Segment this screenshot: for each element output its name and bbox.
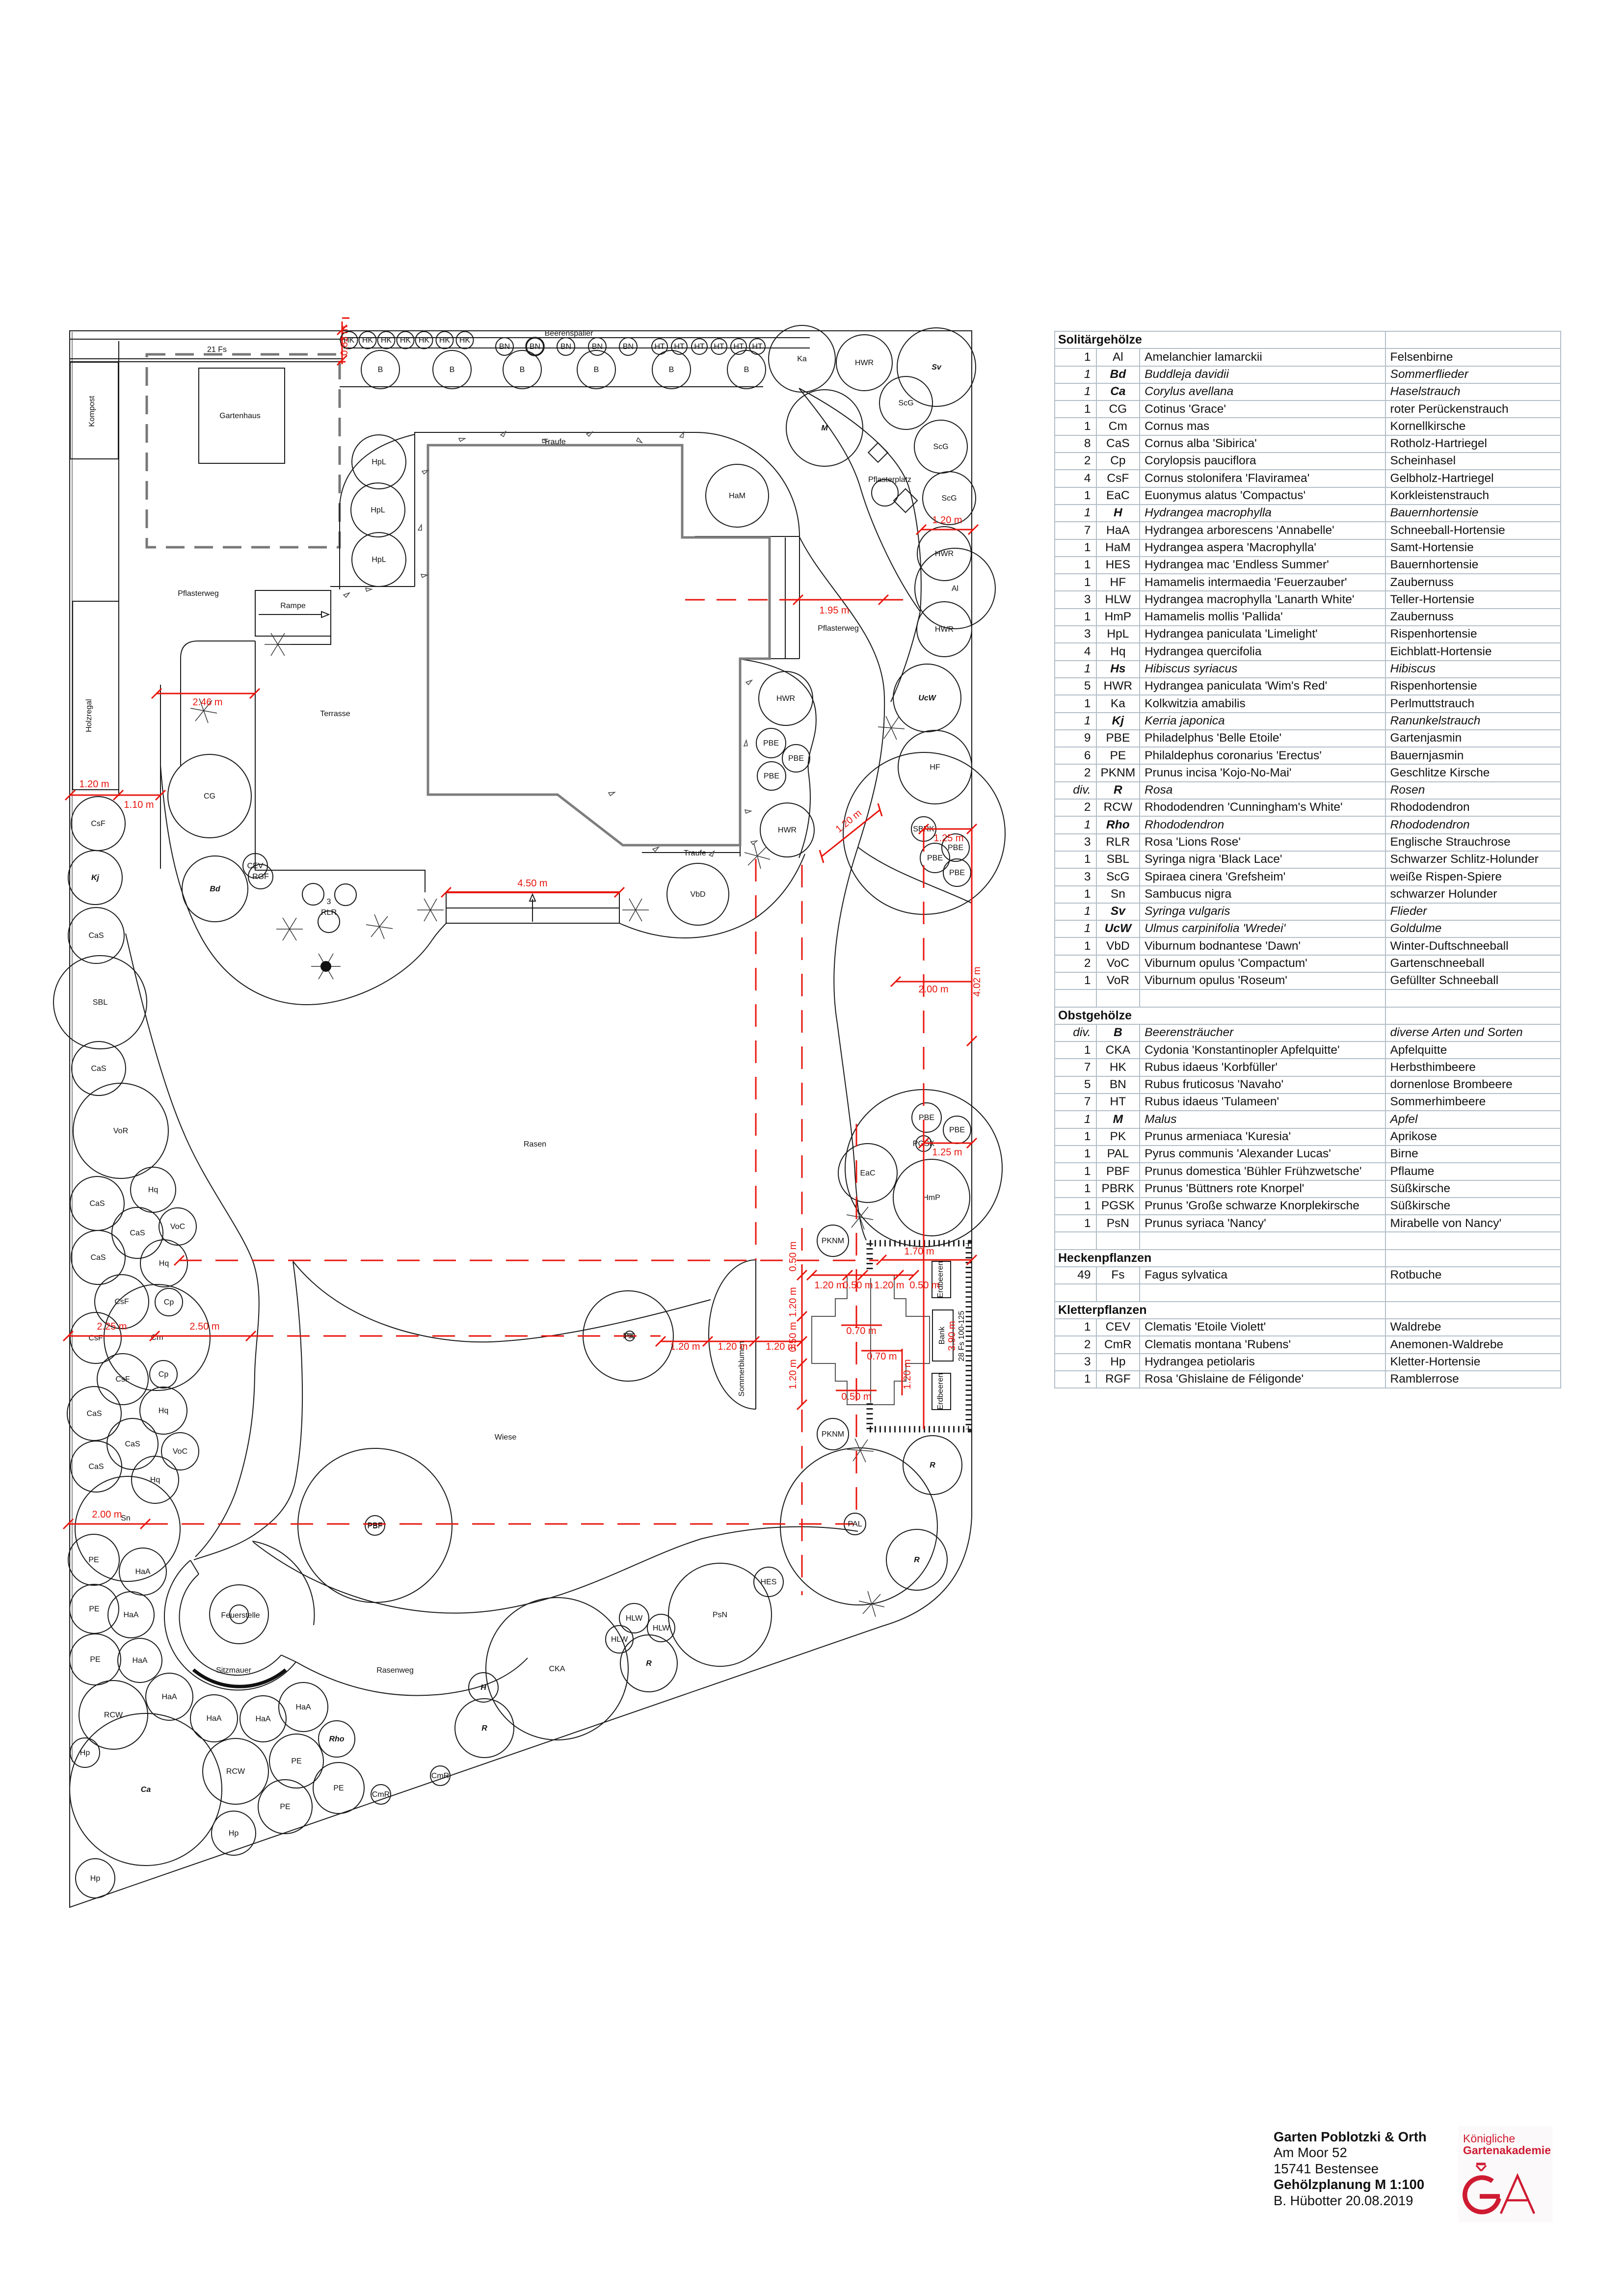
svg-text:Rasenweg: Rasenweg (376, 1666, 414, 1675)
svg-text:1.20 m: 1.20 m (788, 1287, 799, 1317)
svg-text:1.20 m: 1.20 m (718, 1341, 747, 1352)
svg-text:1.10 m: 1.10 m (124, 800, 154, 810)
svg-text:Hp: Hp (80, 1749, 90, 1757)
svg-text:VoC: VoC (170, 1223, 185, 1231)
svg-text:Hp: Hp (90, 1874, 101, 1883)
svg-text:Erdbeeren: Erdbeeren (936, 1261, 945, 1298)
svg-text:BN: BN (592, 343, 603, 351)
svg-text:CsF: CsF (91, 820, 106, 828)
svg-text:4.02 m: 4.02 m (972, 966, 983, 996)
svg-text:HaA: HaA (132, 1656, 147, 1665)
svg-text:PE: PE (333, 1784, 344, 1792)
svg-text:Sitzmauer: Sitzmauer (216, 1666, 252, 1675)
svg-text:28 Fs 100-125: 28 Fs 100-125 (958, 1310, 966, 1361)
svg-text:ScG: ScG (941, 494, 957, 503)
svg-text:HaM: HaM (729, 492, 745, 500)
svg-text:Beerenspalier: Beerenspalier (545, 329, 593, 338)
svg-text:VbD: VbD (690, 890, 705, 899)
svg-text:21 Fs: 21 Fs (207, 346, 227, 354)
svg-text:HT: HT (654, 343, 665, 351)
svg-text:HT: HT (674, 343, 685, 351)
svg-text:PBE: PBE (919, 1114, 934, 1122)
svg-text:VoC: VoC (173, 1447, 187, 1456)
svg-text:Rho: Rho (329, 1735, 344, 1743)
svg-text:Kompost: Kompost (88, 396, 96, 427)
svg-text:HaA: HaA (295, 1703, 311, 1711)
svg-text:PsN: PsN (713, 1611, 727, 1619)
svg-text:UcW: UcW (918, 694, 936, 702)
svg-text:H: H (480, 1683, 486, 1692)
svg-text:Feuerstelle: Feuerstelle (221, 1611, 260, 1620)
svg-text:PK: PK (624, 1332, 635, 1340)
svg-text:1.20 m: 1.20 m (932, 515, 962, 526)
svg-text:0.50 m: 0.50 m (788, 1241, 799, 1271)
svg-text:Bd: Bd (210, 885, 221, 893)
svg-text:Rasen: Rasen (524, 1140, 546, 1148)
svg-text:1.20 m: 1.20 m (834, 808, 864, 835)
svg-text:CKA: CKA (549, 1665, 565, 1673)
svg-text:3.90 m: 3.90 m (947, 1321, 958, 1351)
svg-text:PKNM: PKNM (822, 1430, 844, 1439)
svg-text:Wiese: Wiese (495, 1433, 517, 1442)
svg-text:RCW: RCW (226, 1767, 245, 1776)
svg-text:R: R (930, 1461, 935, 1469)
svg-text:HT: HT (694, 343, 705, 351)
svg-text:2.00 m: 2.00 m (918, 984, 948, 995)
svg-text:PBE: PBE (948, 844, 963, 852)
svg-text:Ca: Ca (141, 1786, 151, 1794)
svg-text:Hq: Hq (148, 1186, 158, 1194)
svg-text:Erdbeeren: Erdbeeren (936, 1373, 945, 1410)
svg-text:4.50 m: 4.50 m (517, 878, 547, 889)
svg-text:PE: PE (90, 1655, 100, 1664)
svg-text:CsF: CsF (115, 1375, 130, 1384)
svg-text:PBE: PBE (927, 854, 943, 862)
svg-text:PAL: PAL (848, 1520, 862, 1528)
svg-text:PBF: PBF (367, 1522, 382, 1530)
svg-text:PE: PE (291, 1757, 301, 1765)
svg-text:Bank: Bank (938, 1326, 946, 1344)
svg-text:HK: HK (459, 336, 471, 345)
svg-text:RLR: RLR (321, 908, 337, 917)
svg-text:1.20 m: 1.20 m (902, 1359, 913, 1389)
svg-text:CaS: CaS (130, 1229, 145, 1237)
svg-text:HWR: HWR (935, 550, 954, 558)
svg-text:PKNM: PKNM (822, 1237, 844, 1245)
svg-text:HaA: HaA (255, 1715, 270, 1723)
svg-text:Hq: Hq (150, 1476, 160, 1484)
svg-text:HF: HF (930, 763, 940, 772)
svg-text:CaS: CaS (86, 1410, 102, 1418)
svg-text:HWR: HWR (778, 826, 797, 834)
svg-text:B: B (669, 366, 674, 374)
svg-text:Pflasterweg: Pflasterweg (178, 589, 219, 598)
svg-text:M: M (821, 424, 828, 432)
svg-text:HpL: HpL (371, 506, 385, 514)
svg-text:PE: PE (88, 1556, 99, 1564)
svg-text:HK: HK (400, 336, 411, 345)
svg-text:CG: CG (204, 792, 215, 801)
svg-text:1.25 m: 1.25 m (932, 1147, 962, 1158)
svg-text:HT: HT (714, 343, 724, 351)
svg-text:0.70 m: 0.70 m (867, 1351, 897, 1362)
svg-text:1.25 m: 1.25 m (933, 833, 963, 844)
svg-text:Ka: Ka (797, 355, 807, 363)
svg-text:Sv: Sv (932, 363, 942, 372)
svg-text:Traufe: Traufe (684, 849, 706, 857)
svg-text:HK: HK (419, 336, 430, 345)
svg-text:CmR: CmR (372, 1790, 390, 1799)
svg-text:HaA: HaA (135, 1568, 150, 1576)
svg-text:HWR: HWR (776, 694, 795, 703)
svg-text:1.20 m: 1.20 m (670, 1341, 700, 1352)
svg-text:Al: Al (952, 585, 958, 593)
svg-text:HLW: HLW (626, 1614, 643, 1623)
svg-text:3: 3 (327, 898, 331, 906)
svg-text:2.25 m: 2.25 m (97, 1321, 127, 1332)
svg-text:HWR: HWR (935, 625, 954, 634)
svg-text:HpL: HpL (372, 556, 386, 564)
svg-text:CmR: CmR (431, 1772, 449, 1780)
svg-text:B: B (744, 366, 749, 374)
svg-text:HWR: HWR (855, 359, 874, 367)
svg-text:VoR: VoR (113, 1127, 128, 1135)
svg-text:1.20 m: 1.20 m (874, 1280, 904, 1291)
svg-text:HLW: HLW (611, 1635, 628, 1644)
svg-text:0.70 m: 0.70 m (846, 1326, 876, 1336)
svg-text:1.20 m: 1.20 m (814, 1280, 844, 1291)
svg-text:R: R (914, 1556, 920, 1564)
svg-text:CaS: CaS (125, 1440, 140, 1448)
svg-text:2.50 m: 2.50 m (189, 1321, 219, 1332)
svg-text:0.50 m: 0.50 m (909, 1280, 939, 1291)
svg-text:CaS: CaS (89, 1200, 105, 1208)
svg-text:Cp: Cp (159, 1370, 169, 1379)
svg-text:PBE: PBE (788, 754, 804, 763)
svg-text:EaC: EaC (860, 1169, 875, 1177)
svg-text:1.20 m: 1.20 m (788, 1359, 799, 1389)
svg-text:Terrasse: Terrasse (320, 710, 350, 718)
svg-text:Pflasterplatz: Pflasterplatz (868, 476, 911, 484)
svg-text:PBE: PBE (949, 1126, 965, 1134)
svg-text:HK: HK (439, 336, 451, 345)
svg-text:1.20 m: 1.20 m (79, 779, 109, 790)
svg-text:0.50 m: 0.50 m (843, 1280, 873, 1291)
svg-text:HaA: HaA (161, 1693, 177, 1701)
svg-text:1.70 m: 1.70 m (904, 1246, 934, 1257)
svg-text:PE: PE (280, 1803, 290, 1811)
svg-text:ScG: ScG (898, 399, 913, 407)
svg-text:0.50 m: 0.50 m (788, 1322, 799, 1352)
svg-text:Rampe: Rampe (280, 602, 306, 610)
svg-text:HaA: HaA (206, 1714, 221, 1723)
svg-text:Hq: Hq (159, 1259, 169, 1268)
svg-text:CaS: CaS (88, 932, 104, 940)
svg-text:ScG: ScG (933, 443, 948, 451)
svg-text:BN: BN (530, 343, 540, 351)
svg-text:HES: HES (761, 1578, 777, 1586)
svg-text:HT: HT (752, 343, 763, 351)
svg-text:PBE: PBE (949, 869, 965, 877)
svg-text:BN: BN (499, 343, 510, 351)
svg-text:RGF: RGF (252, 873, 269, 881)
svg-text:Holzregal: Holzregal (85, 699, 93, 732)
svg-text:Hp: Hp (229, 1829, 239, 1838)
svg-text:2.00 m: 2.00 m (92, 1509, 122, 1520)
svg-text:BN: BN (560, 343, 571, 351)
svg-text:HpL: HpL (372, 458, 386, 466)
svg-text:CaS: CaS (88, 1463, 104, 1471)
svg-text:CsF: CsF (114, 1298, 129, 1306)
svg-text:0.83 m: 0.83 m (339, 325, 350, 355)
svg-text:R: R (481, 1724, 487, 1733)
svg-text:CaS: CaS (91, 1065, 106, 1073)
svg-text:SBL: SBL (93, 998, 107, 1007)
svg-text:Cp: Cp (164, 1298, 174, 1307)
svg-text:HmP: HmP (923, 1194, 940, 1202)
svg-text:PBE: PBE (763, 739, 779, 748)
svg-text:Sn: Sn (121, 1514, 131, 1522)
svg-text:CaS: CaS (90, 1254, 106, 1262)
svg-text:HLW: HLW (653, 1624, 670, 1632)
svg-text:1.95 m: 1.95 m (819, 605, 849, 616)
svg-text:BN: BN (623, 343, 634, 351)
svg-text:Kj: Kj (91, 874, 100, 882)
svg-text:B: B (594, 366, 599, 374)
svg-text:B: B (378, 366, 383, 374)
svg-text:0.50 m: 0.50 m (841, 1391, 871, 1402)
svg-text:Pflasterweg: Pflasterweg (818, 624, 859, 633)
svg-text:HaA: HaA (123, 1611, 138, 1619)
svg-text:2.46 m: 2.46 m (192, 697, 222, 708)
svg-text:Hq: Hq (159, 1407, 168, 1415)
svg-text:HT: HT (733, 343, 744, 351)
svg-text:PE: PE (89, 1605, 99, 1613)
svg-text:HK: HK (362, 336, 373, 345)
svg-text:PBE: PBE (764, 772, 779, 780)
svg-text:B: B (520, 366, 525, 374)
svg-text:R: R (646, 1659, 652, 1668)
svg-text:Gartenhaus: Gartenhaus (219, 412, 261, 420)
svg-text:HK: HK (381, 336, 392, 345)
svg-text:B: B (450, 366, 455, 374)
